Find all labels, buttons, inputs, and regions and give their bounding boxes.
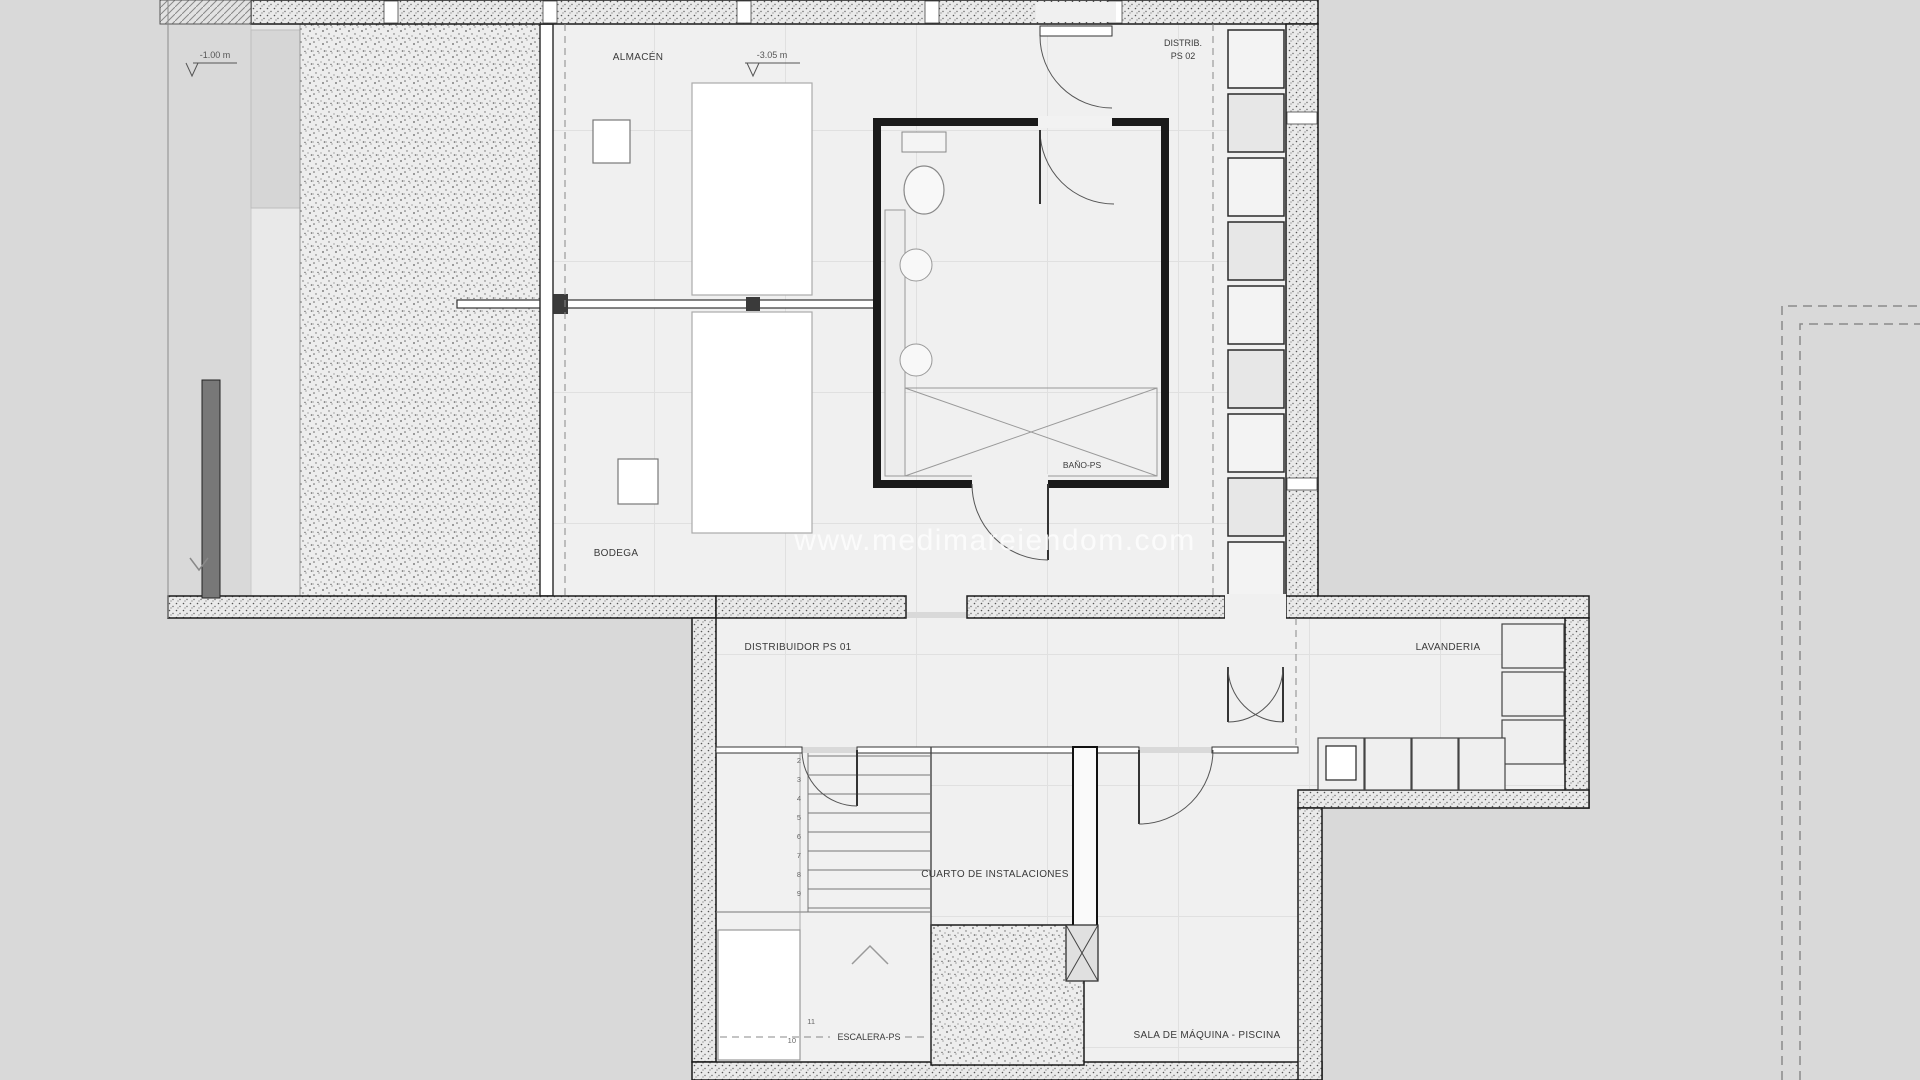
counter-cell-3 <box>1412 738 1458 790</box>
stair-number: 7 <box>797 851 801 860</box>
top-door-gap <box>1036 2 1116 22</box>
hatched-wall-block <box>160 0 251 24</box>
fill-block-lower <box>931 925 1084 1065</box>
label-lavanderia: LAVANDERIA <box>1416 642 1481 653</box>
label-bano-ps: BAÑO-PS <box>1063 460 1102 470</box>
double-door-gap <box>1225 594 1286 620</box>
level-value: -1.00 m <box>200 50 231 60</box>
ramp <box>251 30 300 208</box>
small-cabinet-1 <box>593 120 630 163</box>
storage-bed-1 <box>692 83 812 295</box>
stair-number: 8 <box>797 870 801 879</box>
stair-number: 4 <box>797 794 801 803</box>
top-door-leaf <box>1040 26 1112 36</box>
washer-2 <box>1502 672 1564 716</box>
washer-1 <box>1502 624 1564 668</box>
bathroom-counter <box>885 210 905 476</box>
sink-basin-1 <box>900 249 932 281</box>
wall-lavanderia-right <box>1565 618 1589 808</box>
wall-top <box>251 0 1318 24</box>
stair-number: 3 <box>797 775 801 784</box>
toilet-icon <box>904 166 944 214</box>
shelving-column <box>1228 30 1284 598</box>
watermark-text: www.medimareiendom.com <box>793 524 1195 557</box>
wall-left-lower <box>692 618 716 1062</box>
stair-number: 6 <box>797 832 801 841</box>
counter-cell-2 <box>1365 738 1411 790</box>
stair-number: 5 <box>797 813 801 822</box>
label-sala-maquina-piscina: SALA DE MÁQUINA - PISCINA <box>1134 1028 1281 1041</box>
bathroom <box>877 116 1165 484</box>
bodega-door-gap <box>972 474 1048 488</box>
label-distribuidor-ps01: DISTRIBUIDOR PS 01 <box>744 642 851 653</box>
floor-plan-page: 2 3 4 5 6 7 8 9 11 10 <box>0 0 1920 1080</box>
shaft <box>1066 925 1098 981</box>
corridor-floor <box>716 618 1298 747</box>
label-cuarto-instalaciones: CUARTO DE INSTALACIONES <box>921 869 1069 880</box>
label-distrib-ps02-line2: PS 02 <box>1171 51 1196 61</box>
counter-cell-4 <box>1459 738 1505 790</box>
label-escalera-ps: ESCALERA-PS <box>837 1032 900 1042</box>
interior-wall-pair <box>1073 747 1097 931</box>
stair-number: 2 <box>797 756 801 765</box>
label-distrib-ps02-line1: DISTRIB. <box>1164 38 1202 48</box>
floor-plan-drawing: 2 3 4 5 6 7 8 9 11 10 <box>0 0 1920 1080</box>
wall-mid-left <box>168 596 716 618</box>
small-cabinet-2 <box>618 459 658 504</box>
toilet-tank <box>902 132 946 152</box>
label-almacen: ALMACÉN <box>613 50 663 63</box>
level-value: -3.05 m <box>757 50 788 60</box>
inner-wall-line <box>540 24 553 596</box>
washer-3 <box>1502 720 1564 764</box>
retaining-wall-bar <box>202 380 220 598</box>
sink-basin-2 <box>900 344 932 376</box>
laundry-sink <box>1326 746 1356 780</box>
storage-bed-2 <box>692 312 812 533</box>
stair-number: 11 <box>807 1017 815 1026</box>
wall-lavanderia-bottom <box>1298 790 1589 808</box>
terrain-fill-area <box>300 24 540 596</box>
label-bodega: BODEGA <box>594 548 639 559</box>
wall-sala-right <box>1298 808 1322 1080</box>
stair-number: 9 <box>797 889 801 898</box>
bathroom-door-gap <box>1038 116 1112 128</box>
